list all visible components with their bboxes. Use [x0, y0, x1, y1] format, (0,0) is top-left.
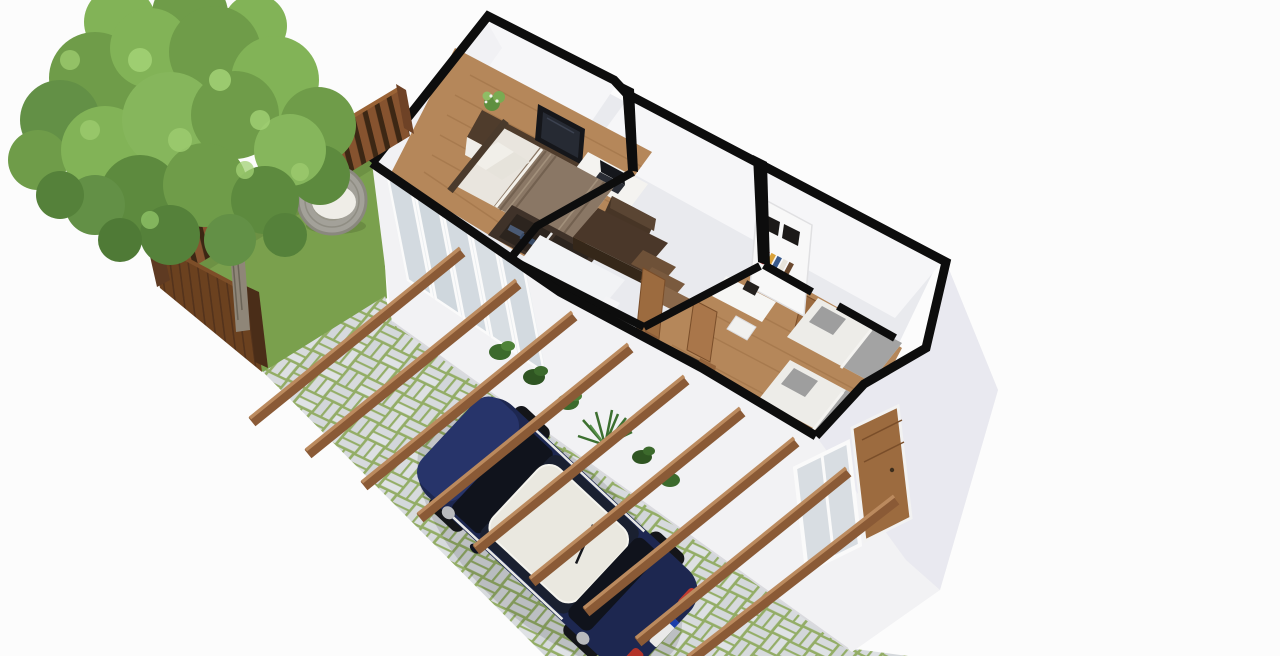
tree-canopy: [8, 0, 356, 266]
scene-canvas: [0, 0, 1280, 656]
floorplan-render-stage: [0, 0, 1280, 656]
